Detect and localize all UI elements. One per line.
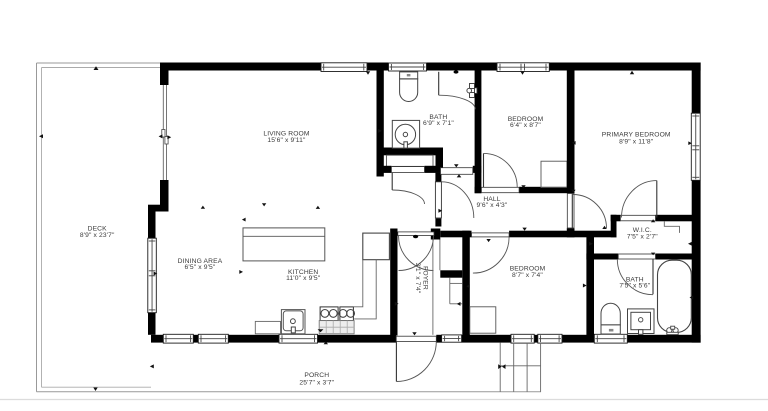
svg-text:8'9" x 23'7": 8'9" x 23'7"	[80, 232, 115, 239]
svg-text:15'6" x 9'11": 15'6" x 9'11"	[267, 137, 306, 144]
svg-text:6'4" x 8'7": 6'4" x 8'7"	[510, 122, 541, 129]
svg-text:6'5" x 9'5": 6'5" x 9'5"	[185, 264, 216, 271]
svg-text:7'5" x 5'6": 7'5" x 5'6"	[619, 283, 650, 290]
svg-text:PORCH: PORCH	[304, 372, 329, 379]
svg-text:8'7" x 7'4": 8'7" x 7'4"	[512, 272, 543, 279]
svg-text:9'6" x 4'3": 9'6" x 4'3"	[477, 202, 508, 209]
svg-text:11'0" x 9'5": 11'0" x 9'5"	[286, 275, 321, 282]
svg-text:6'9" x 7'1": 6'9" x 7'1"	[423, 120, 454, 127]
svg-text:8'9" x 11'8": 8'9" x 11'8"	[619, 139, 654, 146]
svg-text:PRIMARY BEDROOM: PRIMARY BEDROOM	[602, 131, 671, 138]
svg-text:7'5" x 2'7": 7'5" x 2'7"	[627, 233, 658, 240]
svg-text:FOYER: FOYER	[421, 266, 428, 290]
svg-text:25'7" x 3'7": 25'7" x 3'7"	[299, 380, 334, 387]
svg-text:3'1" x 7'4": 3'1" x 7'4"	[414, 263, 421, 294]
